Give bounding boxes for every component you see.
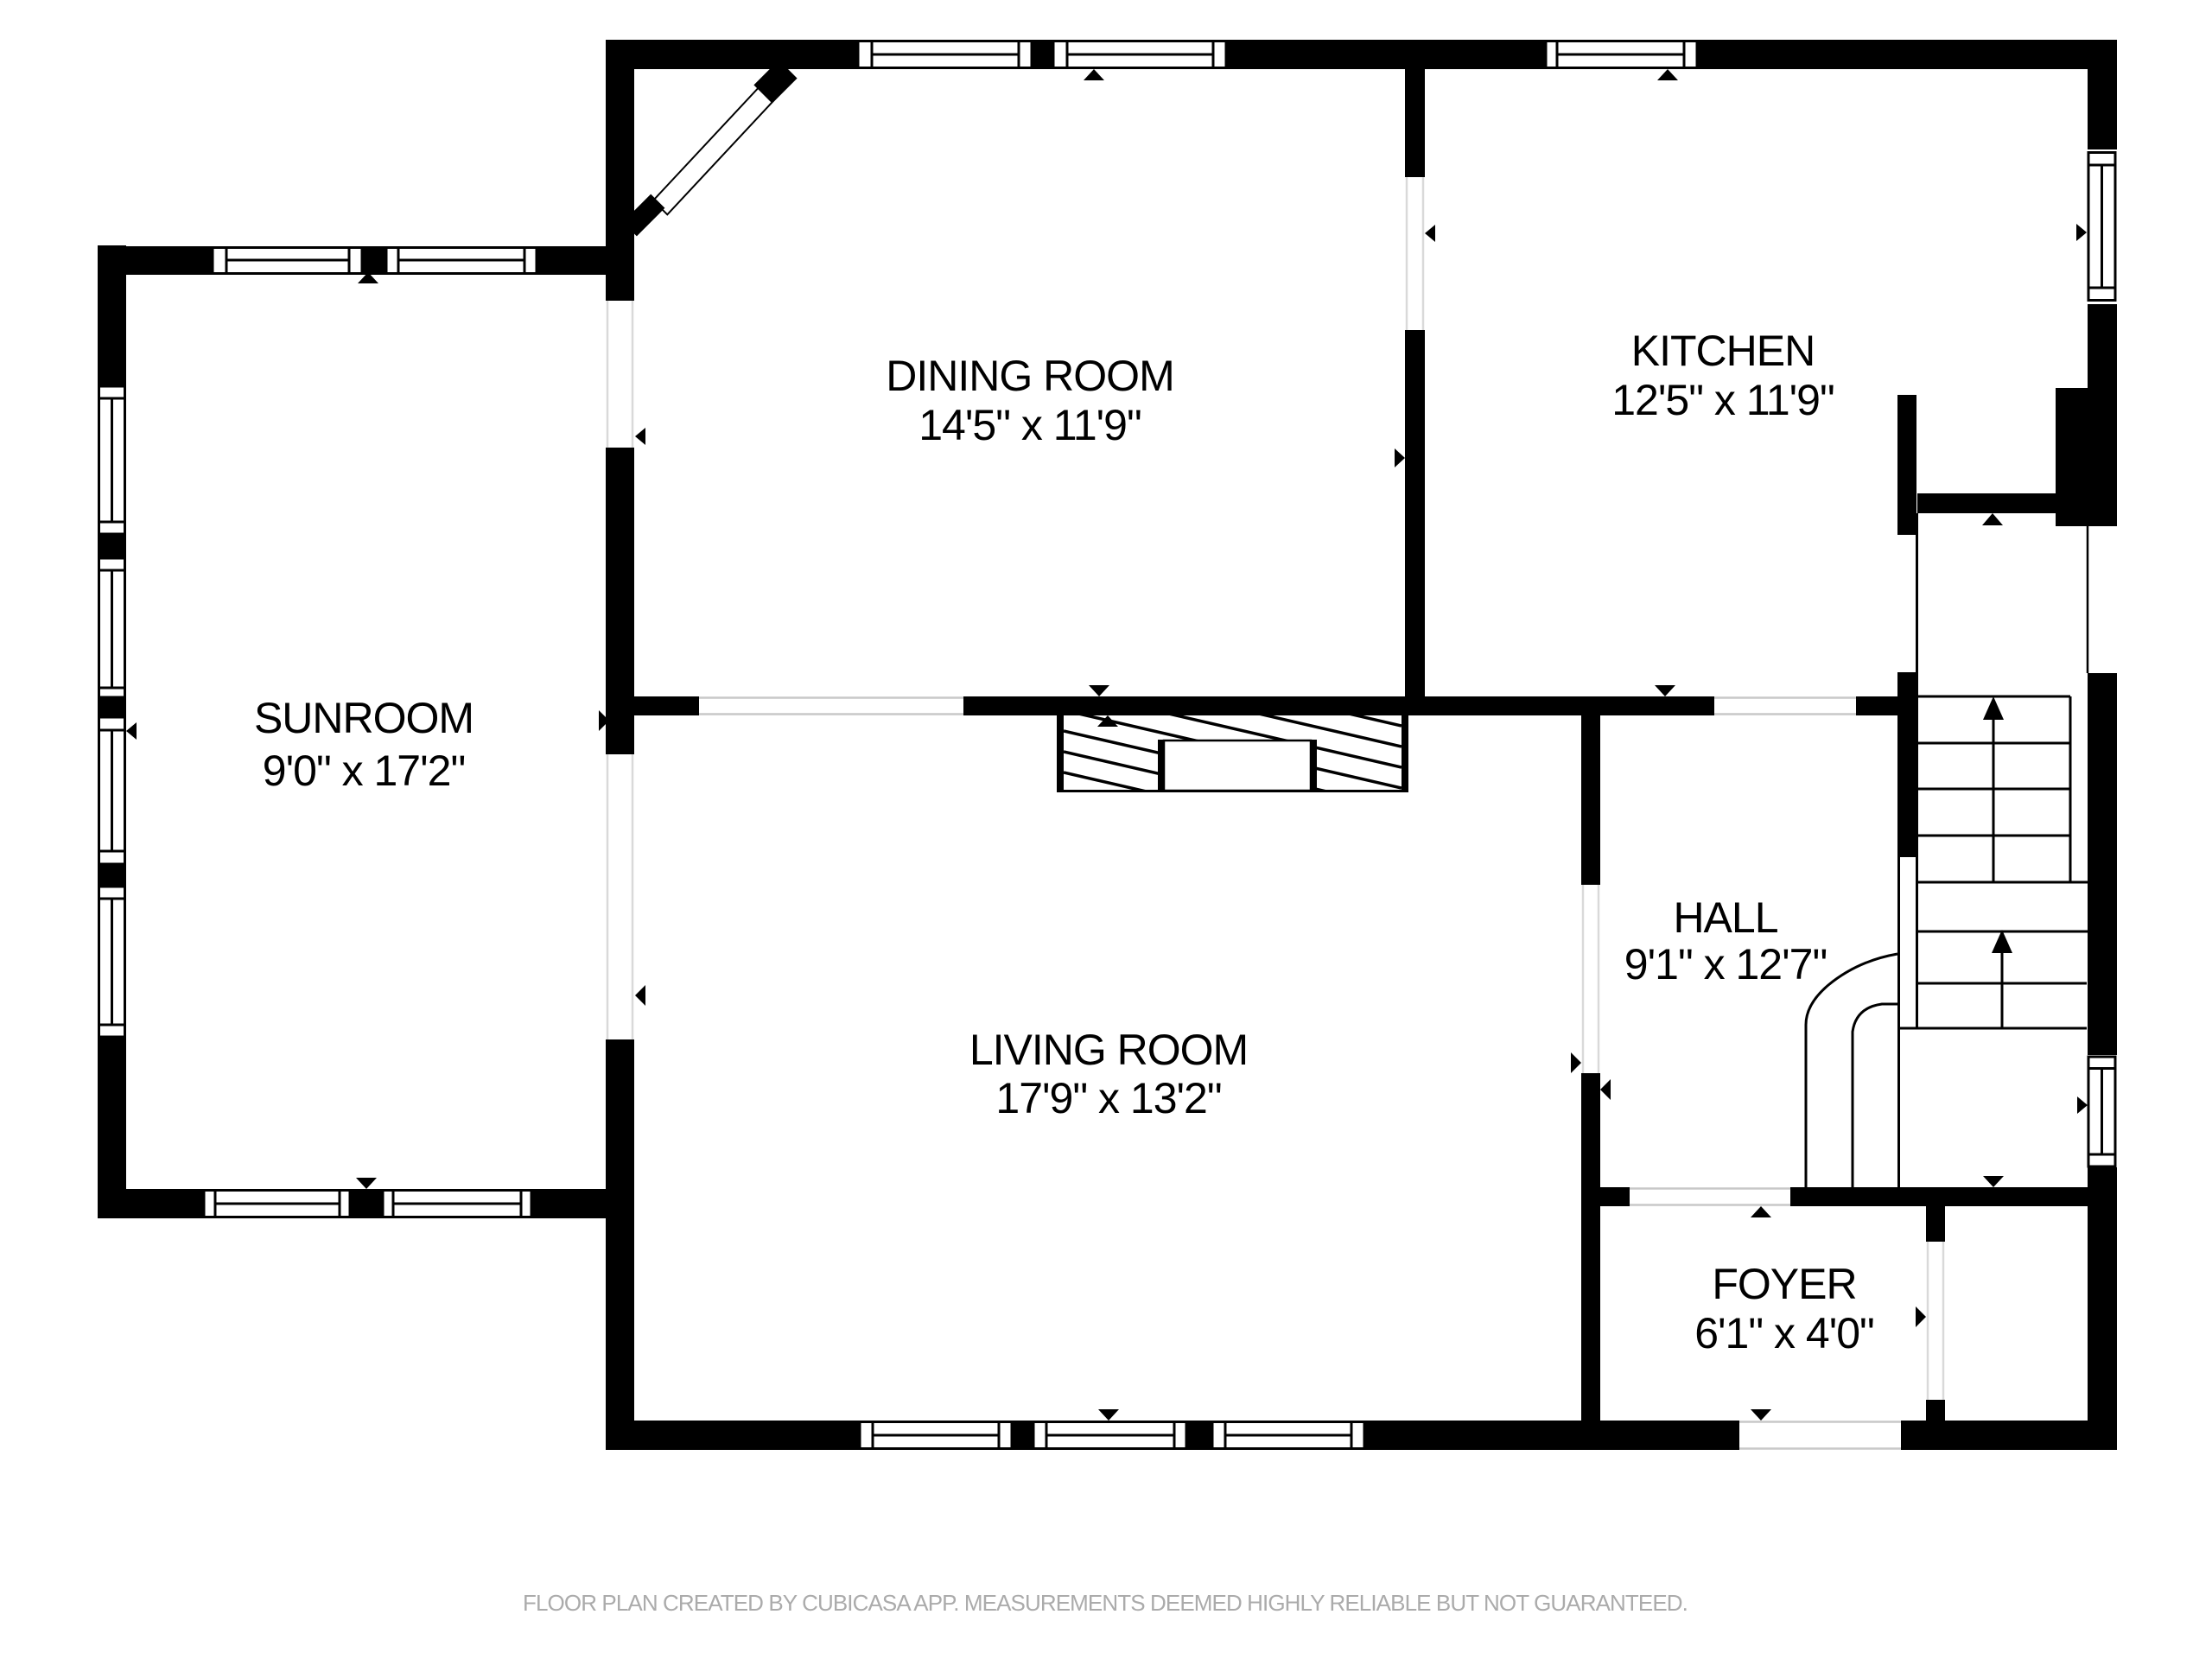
svg-text:9'0" x 17'2": 9'0" x 17'2" <box>263 747 465 795</box>
svg-text:FLOOR PLAN CREATED BY CUBICASA: FLOOR PLAN CREATED BY CUBICASA APP. MEAS… <box>523 1590 1688 1616</box>
svg-text:DINING ROOM: DINING ROOM <box>886 352 1173 400</box>
svg-text:KITCHEN: KITCHEN <box>1631 327 1815 375</box>
svg-text:6'1" x 4'0": 6'1" x 4'0" <box>1694 1309 1874 1357</box>
svg-text:HALL: HALL <box>1673 893 1777 942</box>
svg-text:17'9" x 13'2": 17'9" x 13'2" <box>995 1074 1221 1122</box>
svg-text:12'5" x 11'9": 12'5" x 11'9" <box>1611 376 1834 424</box>
svg-text:FOYER: FOYER <box>1712 1260 1856 1308</box>
svg-text:LIVING ROOM: LIVING ROOM <box>969 1026 1248 1074</box>
svg-text:9'1" x 12'7": 9'1" x 12'7" <box>1624 940 1827 988</box>
svg-text:SUNROOM: SUNROOM <box>254 694 474 742</box>
svg-text:14'5" x 11'9": 14'5" x 11'9" <box>918 401 1141 449</box>
